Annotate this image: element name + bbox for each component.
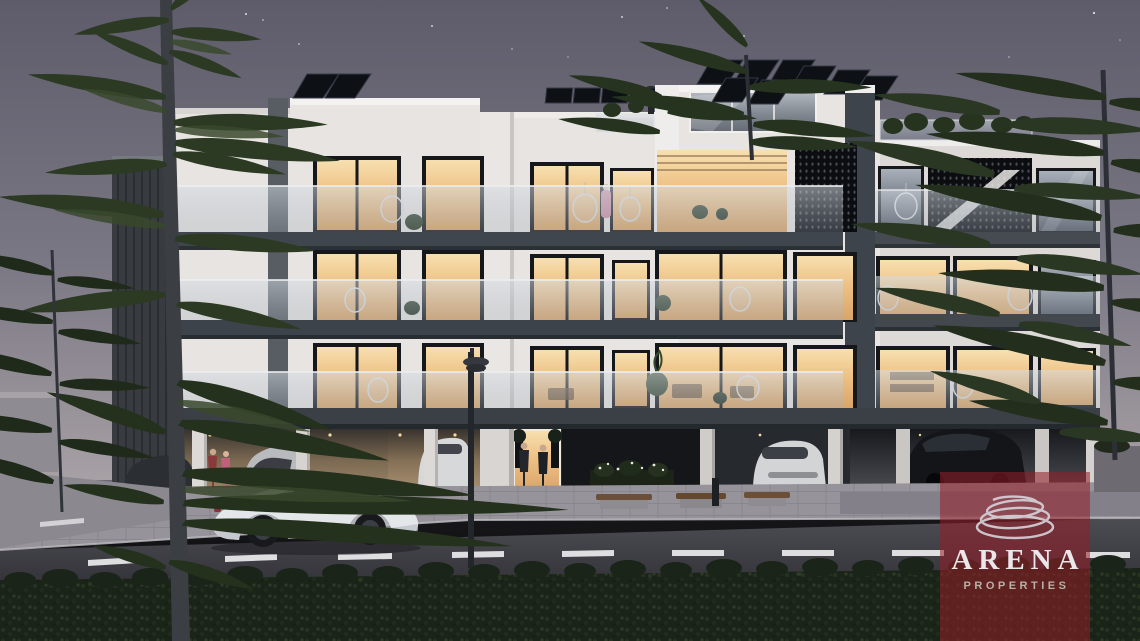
litter-bin	[712, 478, 719, 506]
floor-2-glass-railing	[170, 280, 843, 322]
render-canvas: ARENA PROPERTIES	[0, 0, 1140, 641]
planting-bed	[590, 460, 674, 488]
watermark-panel: ARENA PROPERTIES	[940, 472, 1090, 641]
floor-3-glass-railing	[170, 186, 843, 232]
entrance-lobby	[512, 429, 562, 492]
brand-subtitle: PROPERTIES	[964, 580, 1070, 592]
brand-name: ARENA	[951, 546, 1084, 575]
swirl-logo-icon	[967, 484, 1063, 542]
